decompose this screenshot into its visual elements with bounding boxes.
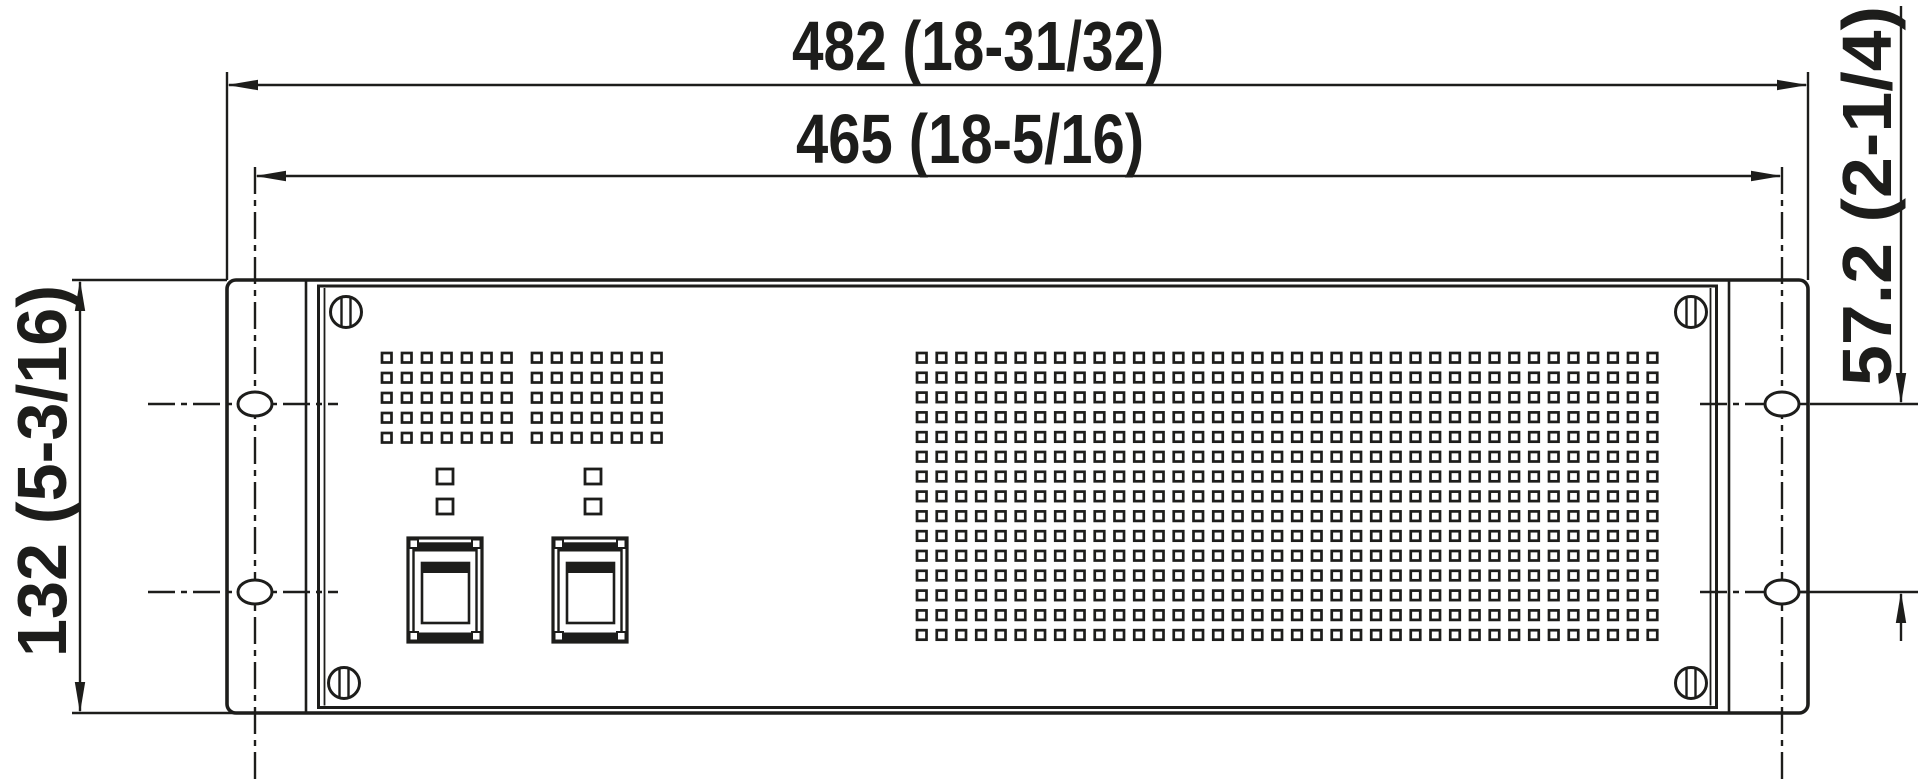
switch-bezel-top-band bbox=[414, 544, 477, 552]
switch-corner-tab bbox=[555, 632, 564, 641]
mounting-slot bbox=[1765, 392, 1799, 416]
switch-rocker-top-bar bbox=[422, 563, 469, 573]
panel-screw bbox=[329, 668, 360, 699]
mounting-slot bbox=[238, 580, 272, 604]
switch-corner-tab bbox=[410, 632, 419, 641]
panel-screw bbox=[1676, 297, 1707, 328]
switch-corner-tab bbox=[472, 632, 481, 641]
dimension-drawing: 482 (18-31/32) 465 (18-5/16) 132 (5-3/16… bbox=[0, 0, 1920, 784]
screw-head-icon bbox=[329, 668, 360, 699]
switch-corner-tab bbox=[617, 632, 626, 641]
panel-screw bbox=[1676, 668, 1707, 699]
dim-hole-span-vertical-label: 57.2 (2-1/4) bbox=[1828, 6, 1906, 386]
dim-overall-width-label: 482 (18-31/32) bbox=[792, 7, 1164, 85]
drawing-canvas: 482 (18-31/32) 465 (18-5/16) 132 (5-3/16… bbox=[0, 0, 1920, 784]
screw-head-icon bbox=[331, 297, 362, 328]
panel-screw bbox=[331, 297, 362, 328]
switch-corner-tab bbox=[555, 540, 564, 549]
switch-bezel-bottom-band bbox=[559, 633, 622, 641]
screw-head-icon bbox=[1676, 297, 1707, 328]
screw-head-icon bbox=[1676, 668, 1707, 699]
mounting-slot bbox=[238, 392, 272, 416]
switch-corner-tab bbox=[472, 540, 481, 549]
switch-bezel-top-band bbox=[559, 544, 622, 552]
mounting-slot bbox=[1765, 580, 1799, 604]
switch-bezel-bottom-band bbox=[414, 633, 477, 641]
dim-hole-span-horizontal-label: 465 (18-5/16) bbox=[796, 100, 1144, 178]
switch-corner-tab bbox=[617, 540, 626, 549]
dim-overall-height-label: 132 (5-3/16) bbox=[3, 285, 81, 657]
switch-corner-tab bbox=[410, 540, 419, 549]
switch-rocker-top-bar bbox=[567, 563, 614, 573]
